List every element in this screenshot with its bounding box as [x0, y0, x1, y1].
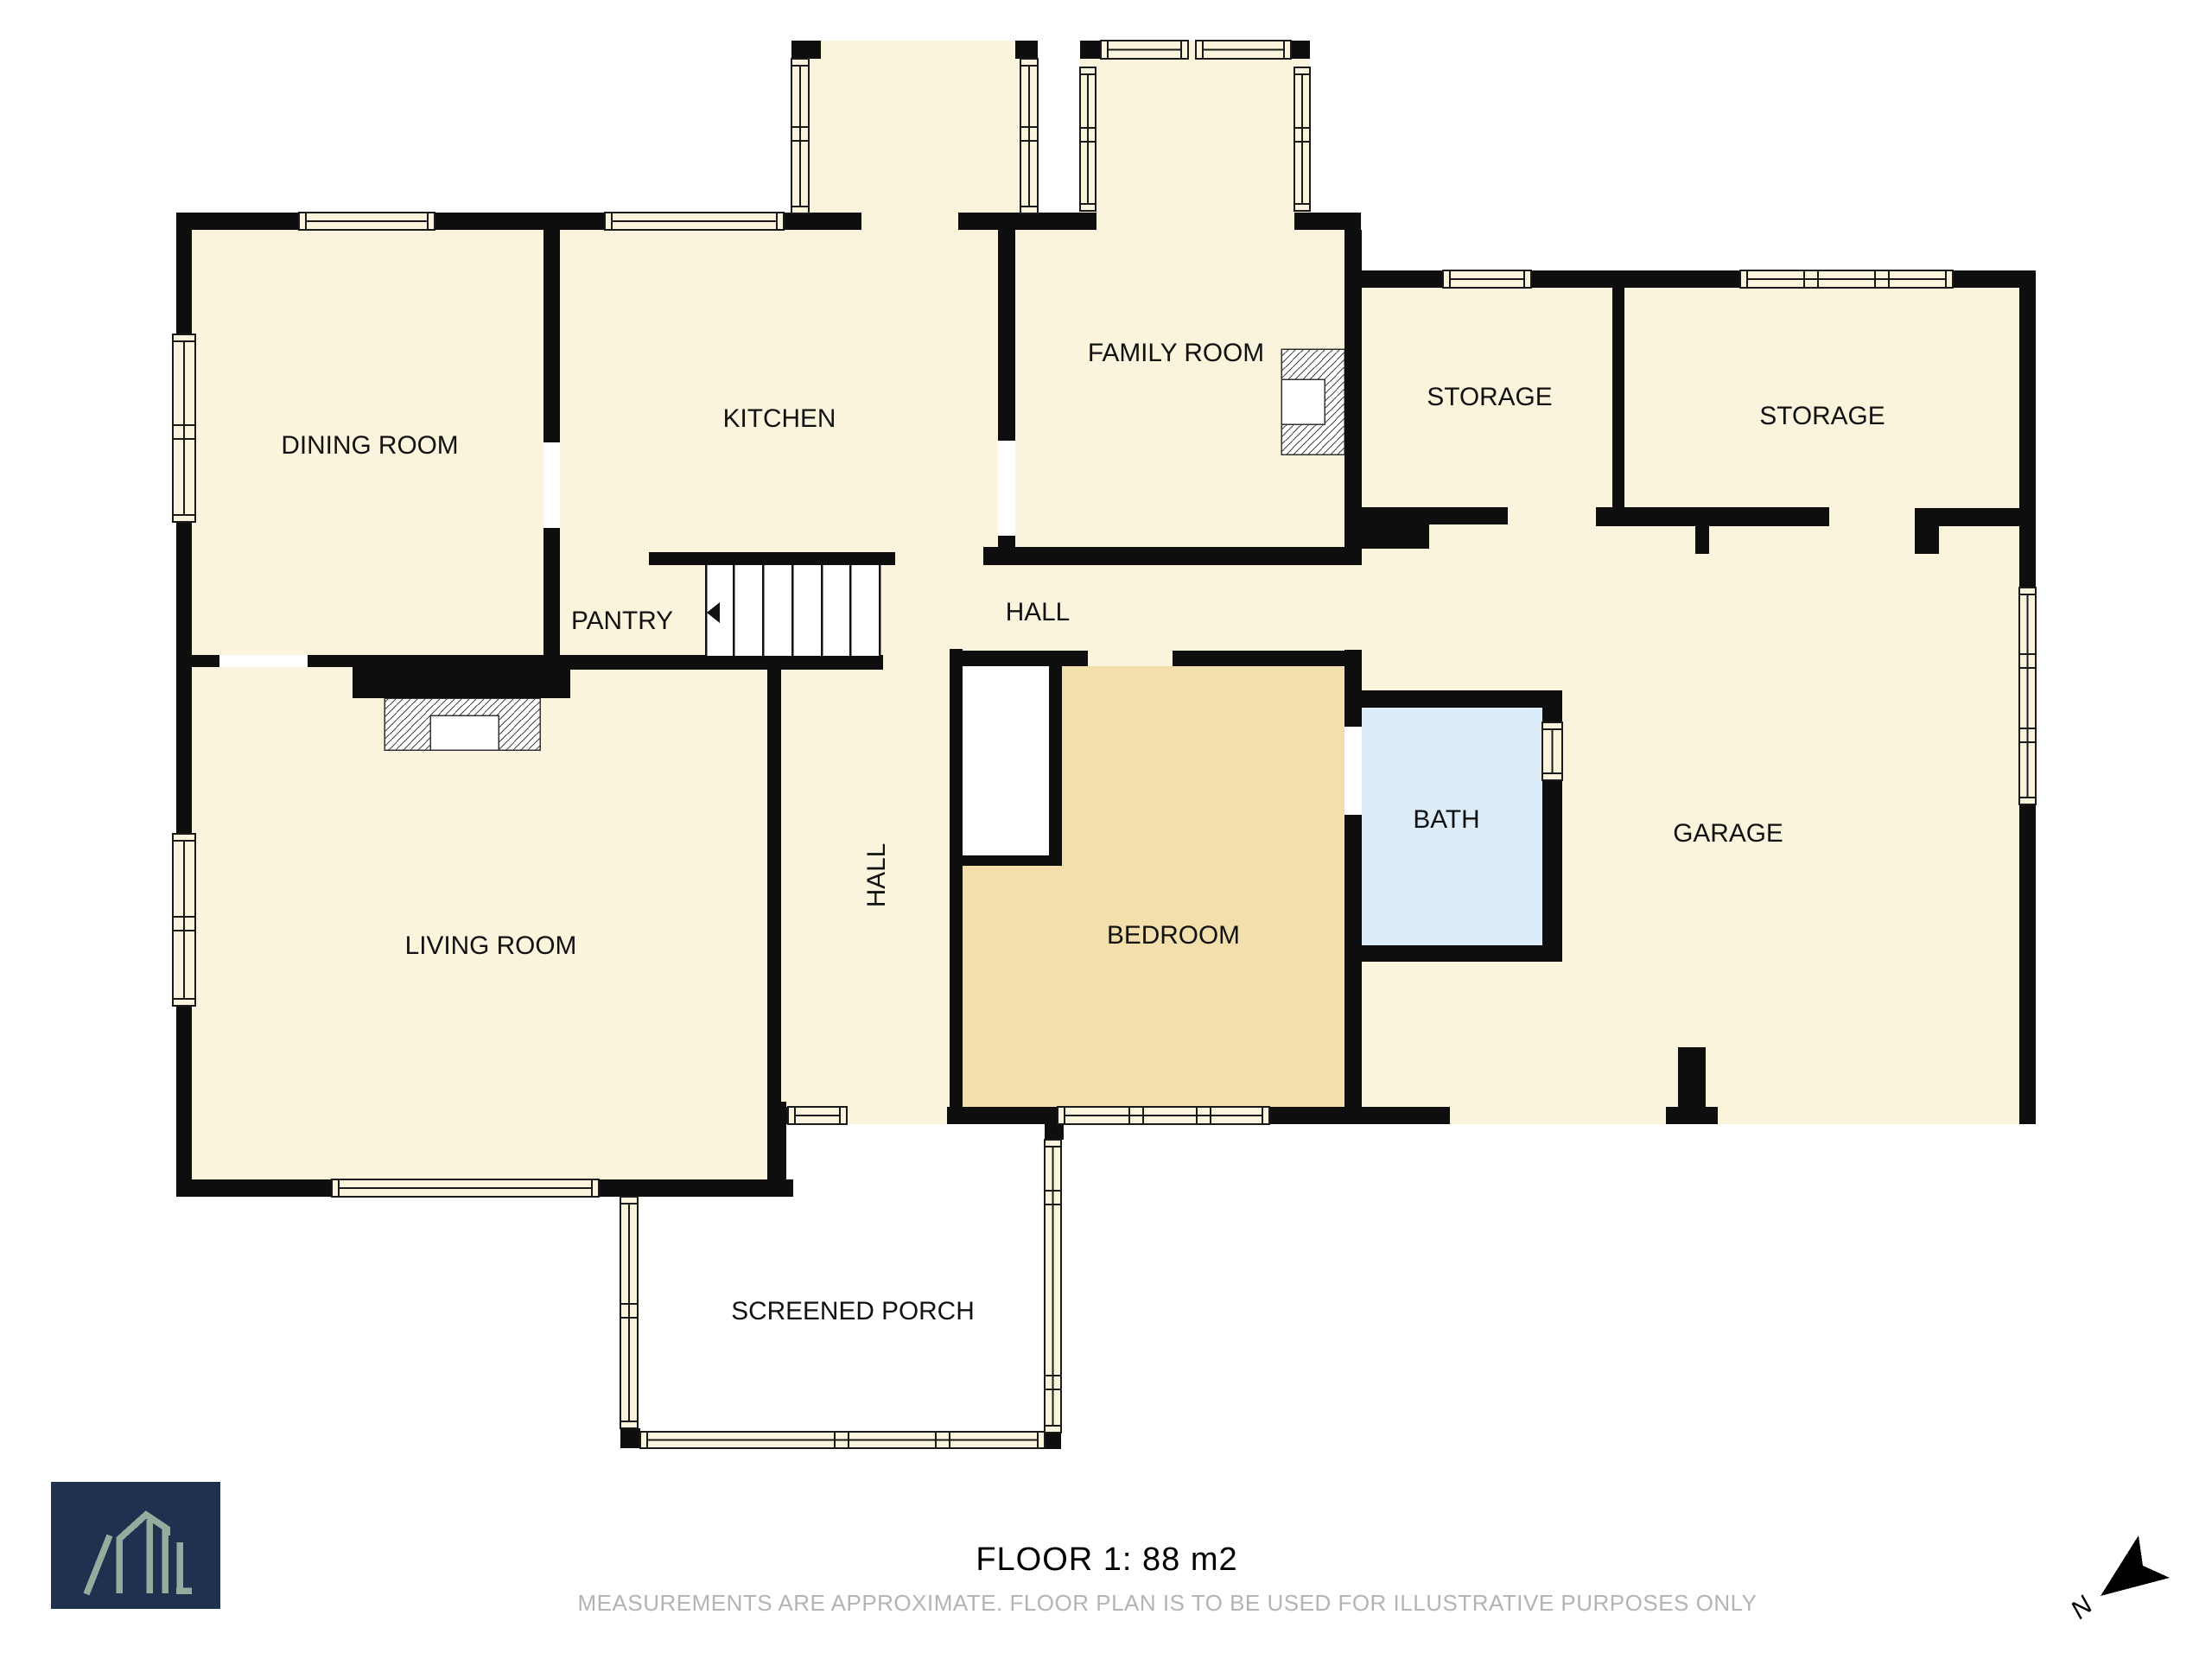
- svg-text:STORAGE: STORAGE: [1759, 402, 1885, 430]
- svg-text:BEDROOM: BEDROOM: [1107, 921, 1240, 950]
- svg-text:SCREENED PORCH: SCREENED PORCH: [731, 1297, 974, 1325]
- svg-text:GARAGE: GARAGE: [1673, 819, 1783, 848]
- svg-text:HALL: HALL: [862, 843, 891, 908]
- svg-text:STORAGE: STORAGE: [1427, 383, 1552, 411]
- svg-text:PANTRY: PANTRY: [571, 607, 673, 635]
- svg-text:FLOOR 1: 88 m2: FLOOR 1: 88 m2: [976, 1541, 1237, 1578]
- svg-text:BATH: BATH: [1413, 805, 1479, 834]
- svg-text:DINING ROOM: DINING ROOM: [281, 431, 458, 460]
- svg-text:LIVING ROOM: LIVING ROOM: [405, 931, 577, 960]
- svg-text:MEASUREMENTS ARE APPROXIMATE.: MEASUREMENTS ARE APPROXIMATE. FLOOR PLAN…: [578, 1590, 1758, 1616]
- svg-text:HALL: HALL: [1006, 598, 1071, 626]
- svg-text:FAMILY ROOM: FAMILY ROOM: [1088, 339, 1264, 367]
- svg-text:KITCHEN: KITCHEN: [723, 404, 836, 433]
